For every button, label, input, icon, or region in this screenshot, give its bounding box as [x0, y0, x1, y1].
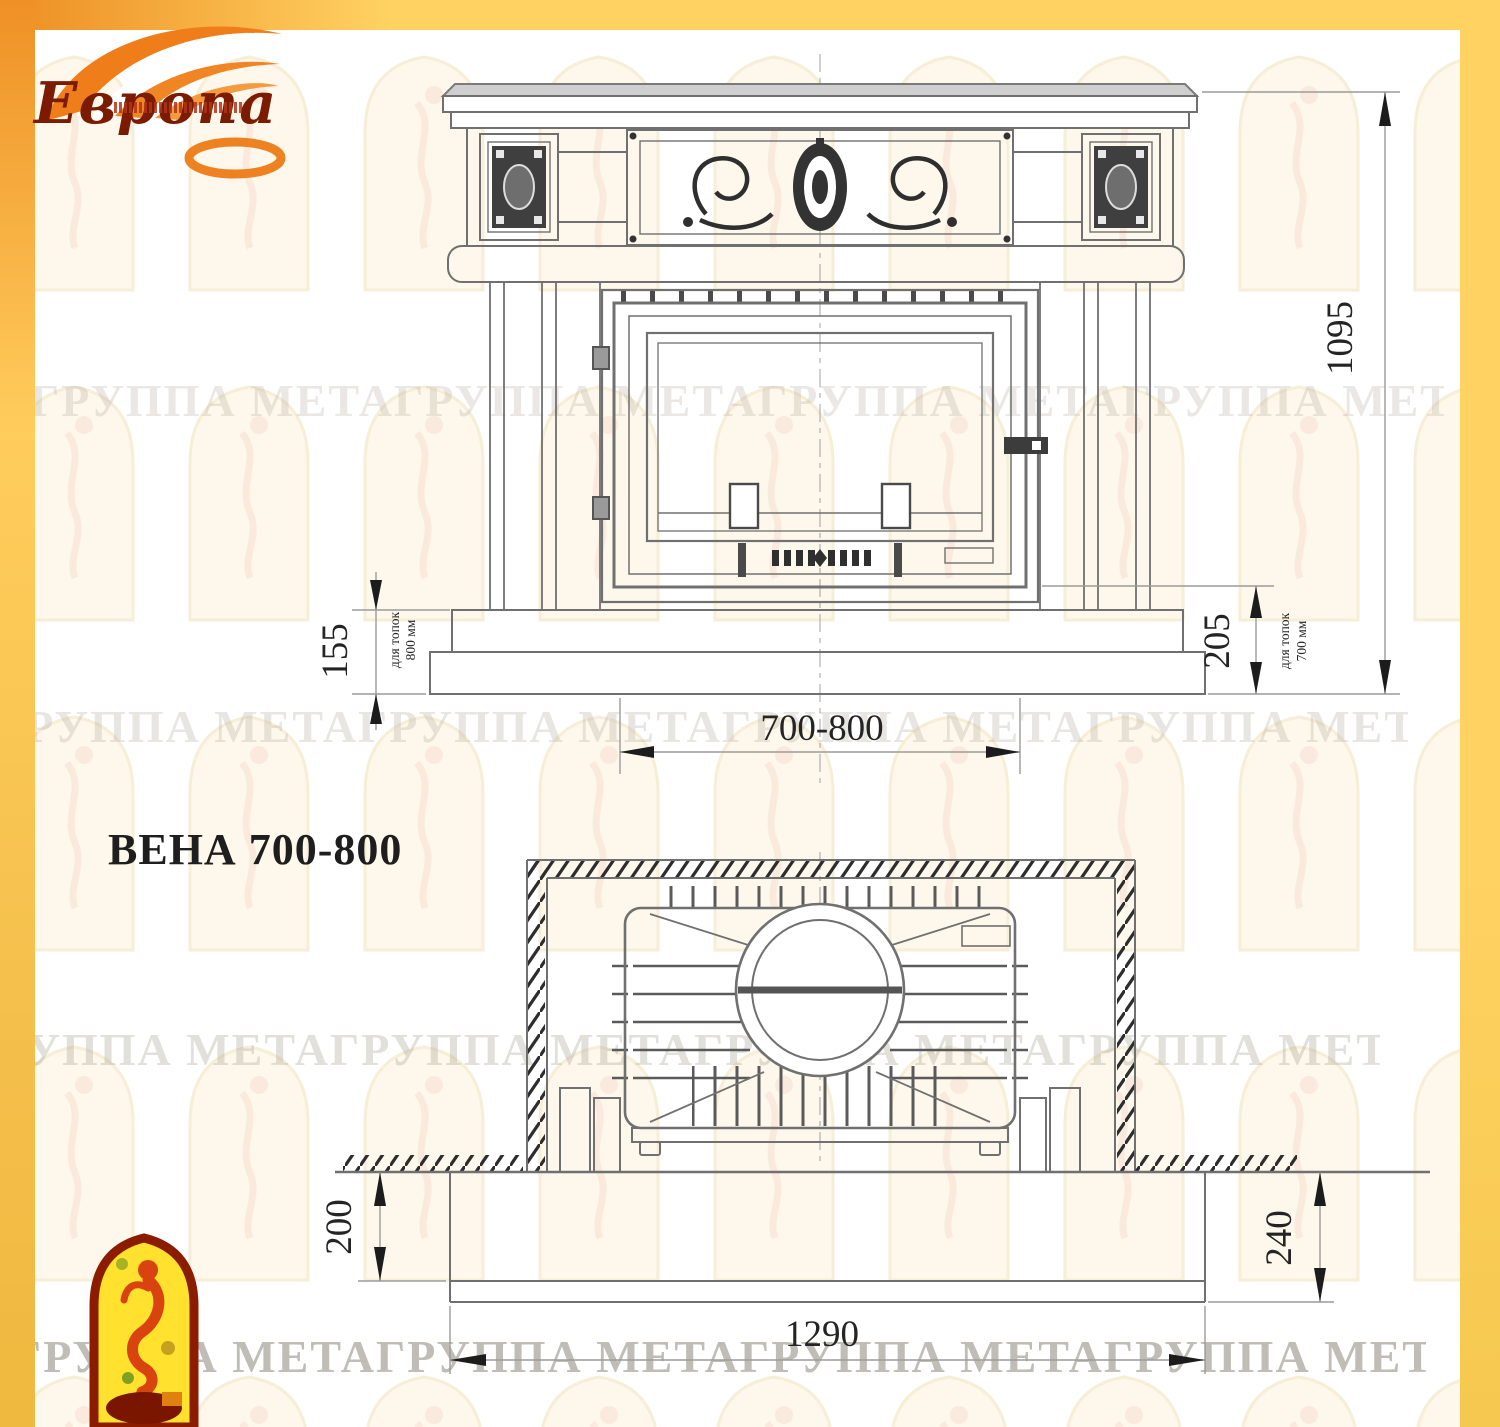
dim-hearth-width: 1290 [450, 1306, 1205, 1374]
ornament-medallion [793, 138, 847, 231]
frieze-tile-left [480, 134, 558, 240]
front-view [430, 84, 1205, 694]
dim-hearth-right: 205 для топок 700 мм [1042, 586, 1309, 694]
insert-plan [560, 886, 1080, 1172]
andiron-left [730, 484, 758, 528]
hearth-plan [450, 1172, 1205, 1302]
arch-figure-icon [84, 1228, 204, 1427]
dimensions: 1095 155 для топок 800 мм 205 для топок … [315, 92, 1400, 1374]
page-border-right [1460, 0, 1500, 1427]
support-block [1020, 1098, 1046, 1172]
svg-text:для топок: для топок [1277, 612, 1292, 669]
molding-band [448, 246, 1184, 282]
support-block [594, 1098, 620, 1172]
base-steps [430, 610, 1205, 694]
andiron-right [882, 484, 910, 528]
door-handle [1004, 437, 1048, 454]
insert-top-vents [616, 291, 1026, 302]
svg-text:700-800: 700-800 [760, 708, 883, 749]
svg-text:700 мм: 700 мм [1294, 620, 1309, 661]
dim-depth-total: 240 [1208, 1172, 1334, 1302]
svg-text:205: 205 [1197, 613, 1238, 669]
brand-plate [945, 548, 993, 563]
svg-text:для топок: для топок [387, 611, 402, 668]
svg-text:800 мм: 800 мм [403, 619, 418, 660]
ornament-scroll [683, 158, 772, 227]
dim-total-height: 1095 [1202, 92, 1400, 694]
svg-text:1290: 1290 [785, 1314, 859, 1355]
svg-text:200: 200 [319, 1199, 360, 1255]
frieze-tile-right [1082, 134, 1160, 240]
brand-tagline-band [114, 102, 244, 113]
hinge-top [593, 347, 609, 369]
frieze-ornament-panel [627, 130, 1013, 245]
support-block [560, 1088, 590, 1172]
svg-text:155: 155 [315, 623, 356, 679]
catalog-page: ГРУППА МЕТАГРУППА МЕТАГРУППА МЕТАГРУППА … [0, 0, 1500, 1427]
hinge-bottom [593, 497, 609, 519]
brand-logo: Европа [30, 6, 292, 244]
svg-text:240: 240 [1259, 1210, 1300, 1266]
svg-text:1095: 1095 [1320, 301, 1361, 375]
dim-depth-front: 200 [319, 1172, 446, 1281]
mantel-shelf [443, 84, 1197, 128]
model-title: ВЕНА 700-800 [108, 824, 402, 875]
support-block [1050, 1088, 1080, 1172]
